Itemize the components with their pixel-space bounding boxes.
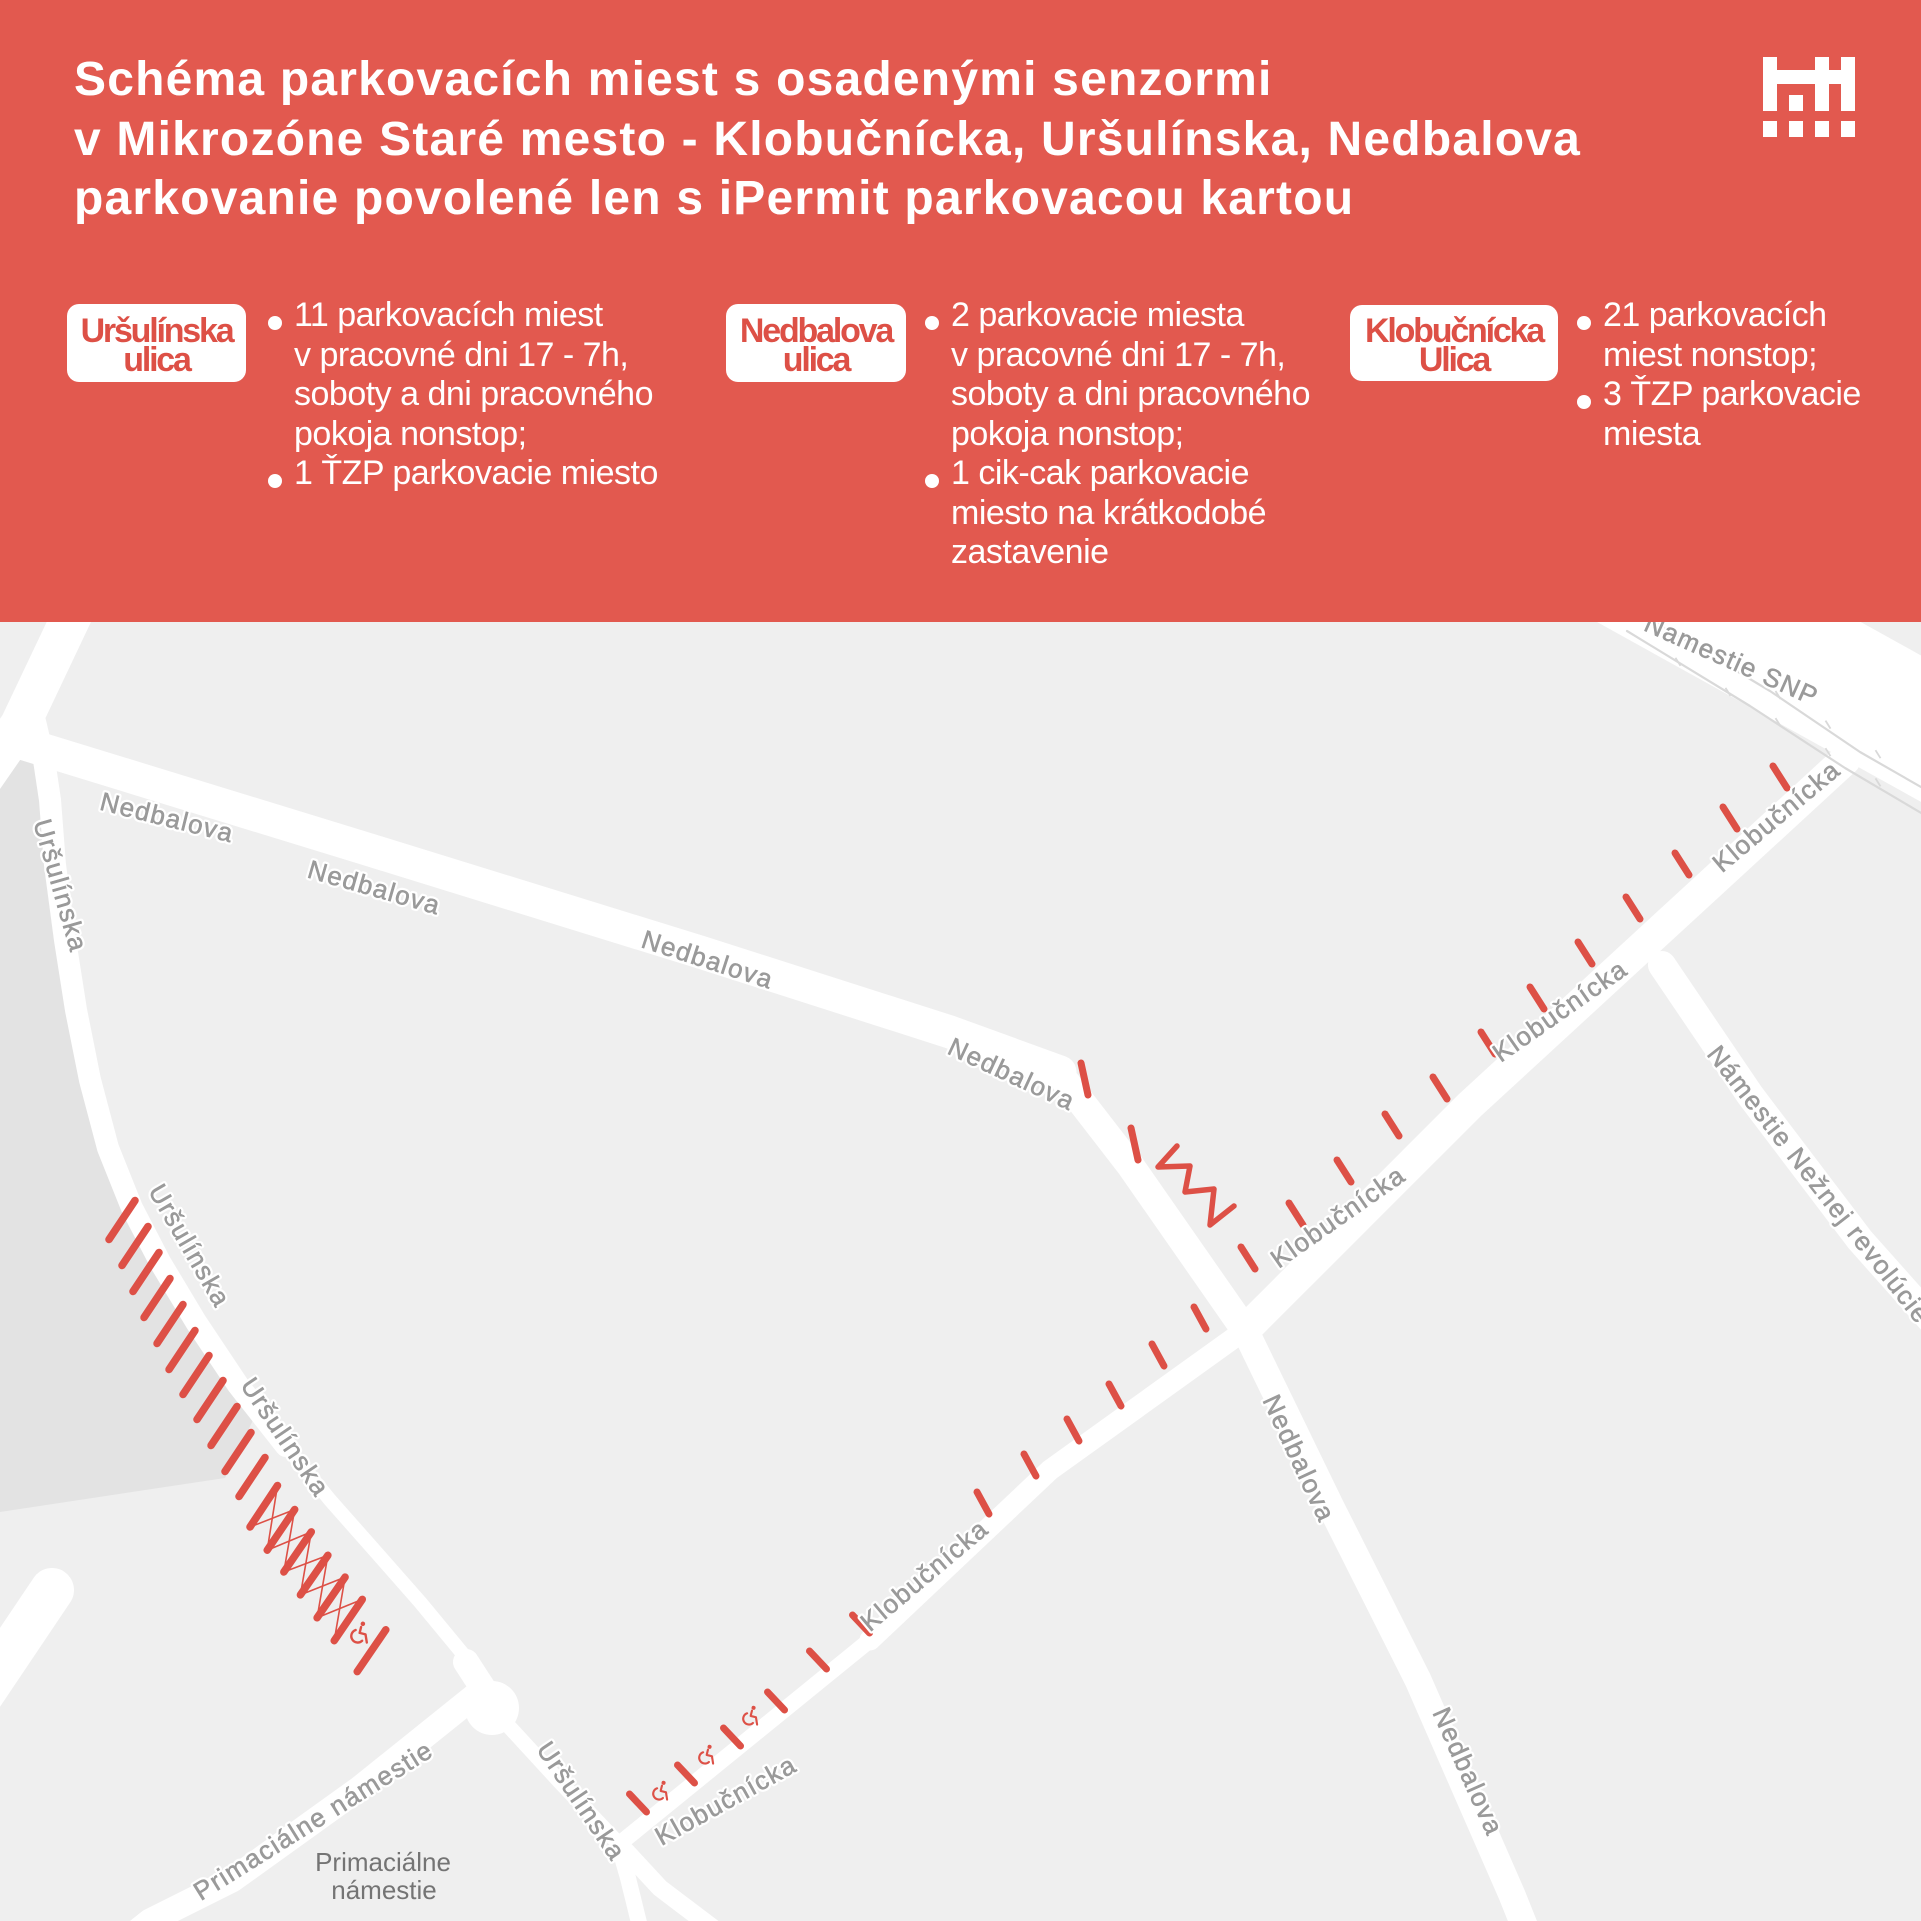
svg-text:Primaciálne: Primaciálne: [315, 1847, 451, 1877]
svg-text:námestie: námestie: [331, 1875, 437, 1905]
